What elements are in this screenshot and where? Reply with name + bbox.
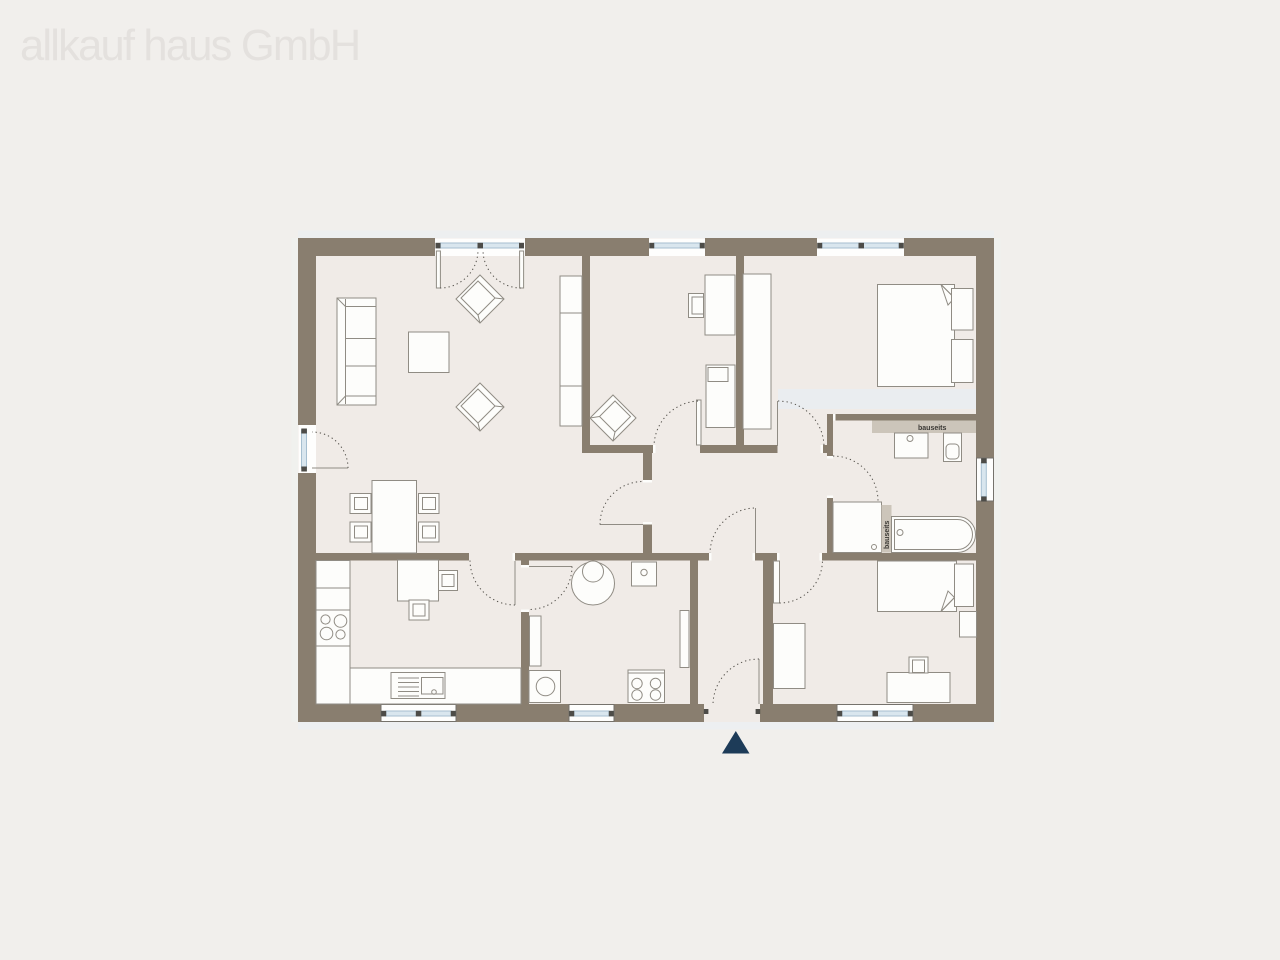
svg-text:allkauf haus GmbH: allkauf haus GmbH [20,22,359,70]
svg-text:bauseits: bauseits [884,520,891,549]
svg-text:bauseits: bauseits [918,425,947,432]
